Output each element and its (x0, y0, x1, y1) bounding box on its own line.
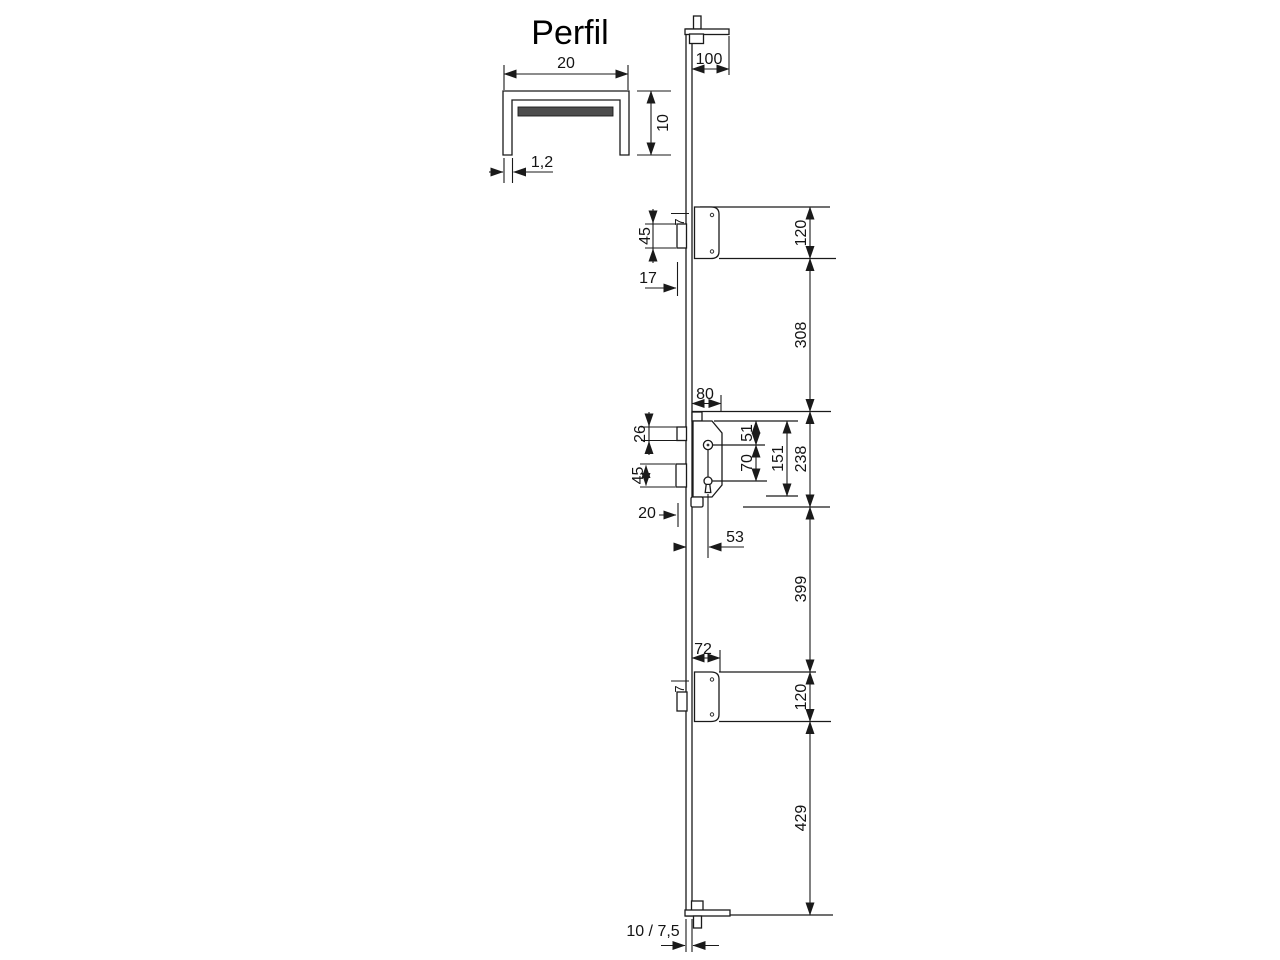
faceplate-width-label: 80 (696, 386, 714, 403)
chain-label-120-bottom: 120 (793, 684, 810, 711)
bottom-keeper-plate (695, 672, 720, 722)
top-bracket-width-label: 100 (696, 51, 723, 68)
bottom-bolt-protrusion-label: 7 (673, 685, 687, 692)
profile-detail-section: Perfil 20 10 1,2 (489, 14, 672, 183)
deadbolt-throw-label: 20 (638, 505, 656, 522)
case-top-latch (692, 412, 702, 421)
extension-line (504, 158, 513, 183)
case-height-label: 151 (770, 445, 787, 472)
chain-label-120-top: 120 (793, 220, 810, 247)
top-keeper-plate (695, 207, 720, 259)
screw-hole (710, 678, 713, 681)
deadbolt (676, 464, 687, 487)
extension-line (686, 919, 692, 952)
screw-hole (710, 250, 713, 253)
top-rod-pin (694, 16, 702, 29)
lock-elevation: 100 7 45 17 80 (626, 16, 836, 952)
technical-drawing-page: Perfil 20 10 1,2 (0, 0, 1280, 960)
top-auxiliary-bolt (677, 224, 687, 248)
case-bottom-step (691, 497, 703, 507)
deadbolt-height-label: 45 (630, 467, 647, 485)
bottom-rod-pin (694, 916, 702, 928)
profile-insert-bar (518, 107, 613, 116)
top-bolt-height-label: 45 (637, 227, 654, 245)
chain-label-429: 429 (793, 805, 810, 832)
top-guide-block (690, 34, 704, 44)
screw-hole (710, 713, 713, 716)
bottom-flange (685, 910, 730, 916)
top-keeper-offset-label: 17 (639, 270, 657, 287)
bottom-end-assembly: 10 / 7,5 (626, 901, 833, 952)
lock-drawing: Perfil 20 10 1,2 (0, 0, 1280, 960)
hub-to-cylinder-label: 70 (739, 454, 756, 472)
profile-width-dimension: 20 (504, 55, 628, 90)
chain-label-238: 238 (793, 446, 810, 473)
backset-label: 53 (726, 529, 744, 546)
bottom-keeper-offset-label: 72 (694, 641, 712, 658)
profile-thickness-label: 1,2 (531, 154, 553, 171)
profile-thickness-dimension: 1,2 (489, 154, 553, 183)
spindle-hub-center (707, 444, 710, 447)
profile-height-dimension: 10 (637, 91, 672, 155)
chain-label-399: 399 (793, 576, 810, 603)
profile-width-label: 20 (557, 55, 575, 72)
bottom-auxiliary-bolt (677, 692, 687, 711)
screw-hole (710, 213, 713, 216)
vertical-dimension-chain: 120 308 238 399 120 429 (743, 207, 830, 915)
u-profile-shape (503, 91, 629, 155)
bottom-guide-block (692, 901, 704, 911)
chain-label-308: 308 (793, 322, 810, 349)
latch-height-label: 26 (632, 425, 649, 443)
profile-section-title: Perfil (531, 14, 608, 52)
hub-offset-label: 51 (739, 424, 756, 442)
profile-height-label: 10 (655, 114, 672, 132)
latch-bolt (677, 427, 687, 441)
rail-thickness-label: 10 / 7,5 (626, 923, 679, 940)
cylinder-keyhole-stem (705, 484, 711, 492)
